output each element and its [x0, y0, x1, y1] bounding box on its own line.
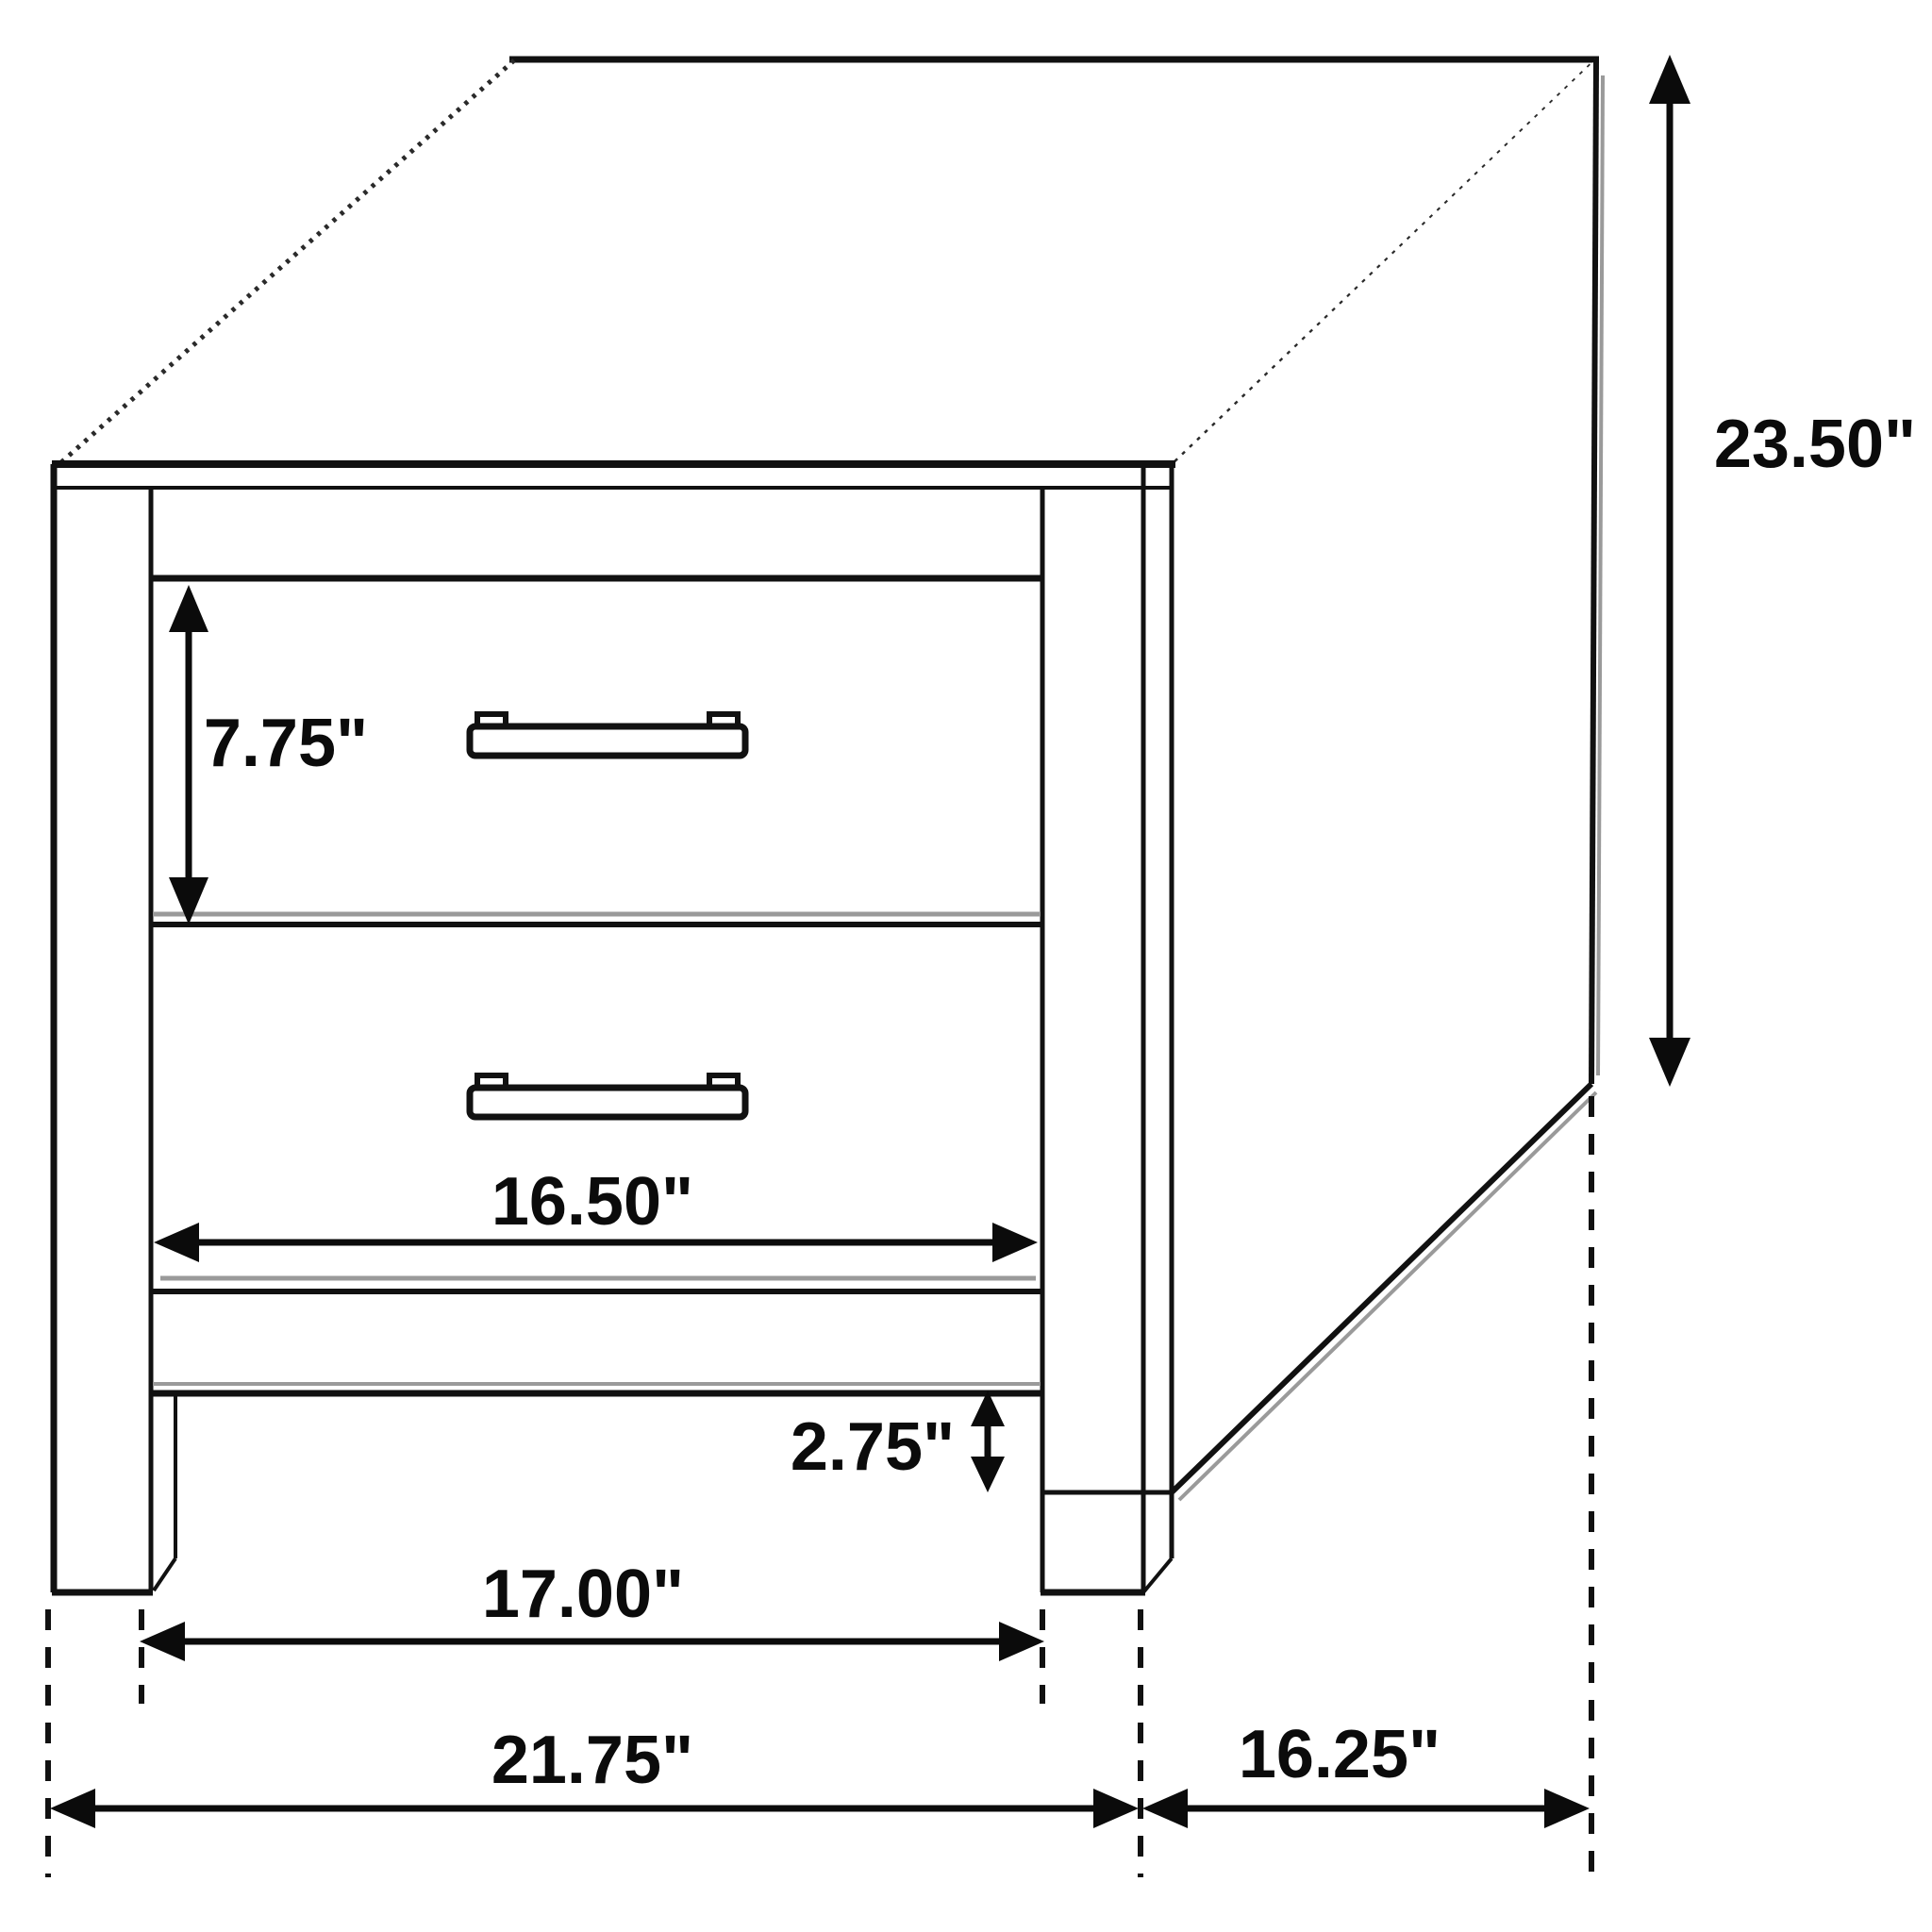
- arrowhead-right: [992, 1223, 1038, 1262]
- dimension-overall-height: 23.50": [1649, 55, 1916, 1087]
- drawer-handle: [470, 1075, 745, 1117]
- dimension-top-drawer-height: 7.75": [169, 585, 368, 924]
- arrowhead-right: [1093, 1789, 1139, 1828]
- arrowhead-right: [1544, 1789, 1590, 1828]
- front-frame: [52, 464, 1175, 1592]
- arrowhead-right: [999, 1622, 1044, 1661]
- diagram-canvas: 23.50" 7.75" 16.50" 2.75" 17: [0, 0, 1932, 1932]
- arrowhead-down: [169, 877, 208, 924]
- dimension-overall-height-label: 23.50": [1714, 407, 1916, 482]
- dimension-top-drawer-height-label: 7.75": [204, 706, 368, 781]
- dimension-drawer-front-width: 16.50": [154, 1164, 1038, 1262]
- dimension-inner-leg-span: 17.00": [140, 1557, 1044, 1661]
- dimension-inner-leg-span-label: 17.00": [482, 1557, 684, 1632]
- arrowhead-left: [50, 1789, 95, 1828]
- arrowhead-up: [169, 585, 208, 632]
- dimension-overall-width-label: 21.75": [491, 1723, 693, 1798]
- dimension-drawer-front-width-label: 16.50": [491, 1164, 693, 1240]
- handle-bar: [470, 726, 745, 756]
- arrowhead-up: [1649, 55, 1690, 104]
- handle-bar: [470, 1088, 745, 1117]
- nightstand-drawing: [52, 59, 1603, 1592]
- dimension-foot-height-label: 2.75": [791, 1409, 955, 1485]
- left-foot-inner-chamfer: [154, 1558, 175, 1591]
- arrowhead-down: [1649, 1038, 1690, 1087]
- right-foot-chamfer: [1143, 1558, 1172, 1592]
- drawer-handle: [470, 714, 745, 756]
- dimension-overall-depth-label: 16.25": [1239, 1717, 1441, 1792]
- back-right-edge-shadow: [1598, 75, 1603, 1075]
- dimension-overall-depth: 16.25": [1142, 1717, 1590, 1828]
- arrowhead-left: [140, 1622, 185, 1661]
- arrowhead-left: [154, 1223, 199, 1262]
- arrowhead-left: [1142, 1789, 1188, 1828]
- dimension-overall-width: 21.75": [50, 1723, 1139, 1828]
- nightstand-dimension-diagram: 23.50" 7.75" 16.50" 2.75" 17: [0, 0, 1932, 1932]
- arrowhead-down: [971, 1457, 1005, 1492]
- dimension-foot-height: 2.75": [791, 1391, 1005, 1492]
